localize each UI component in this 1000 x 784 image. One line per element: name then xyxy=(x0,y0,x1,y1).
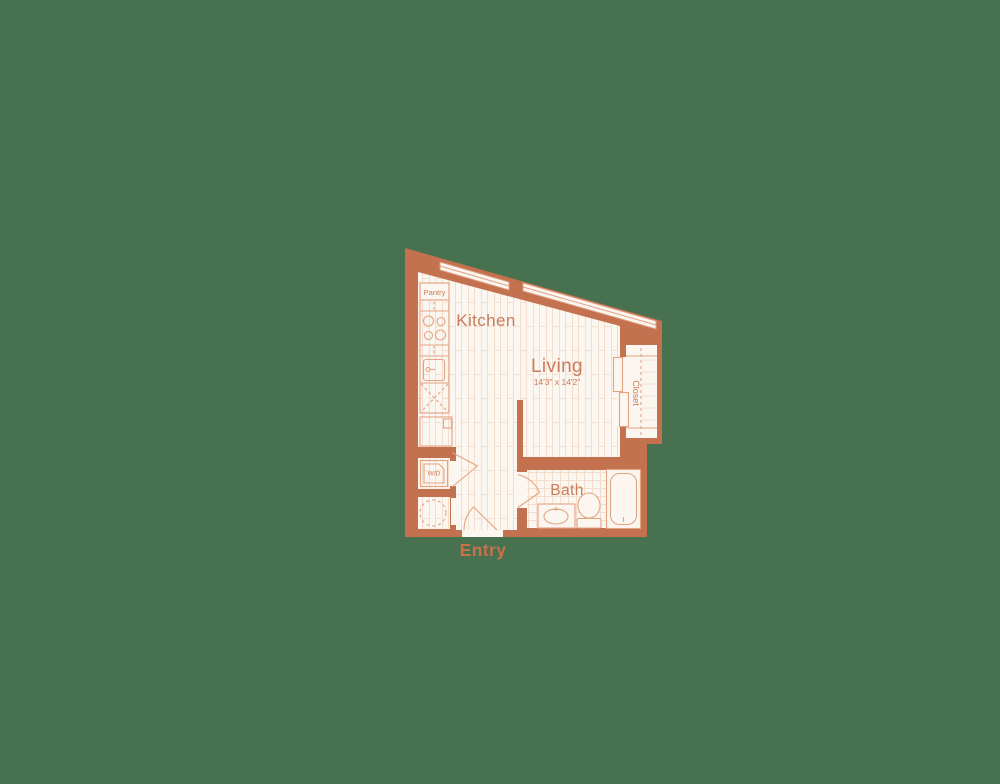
utility-closet-floor xyxy=(418,497,450,529)
kitchen-label: Kitchen xyxy=(456,311,516,330)
floorplan-canvas: Pantry Kitchen Living 14'3" x 14'2" Clos… xyxy=(0,0,1000,784)
bathtub xyxy=(607,470,641,529)
washer-dryer-label: W/D xyxy=(428,471,441,478)
bathroom-vanity xyxy=(538,504,575,528)
closet-label: Closet xyxy=(631,380,641,406)
entry-label: Entry xyxy=(460,540,507,560)
closet-sliding-door xyxy=(614,358,623,392)
pantry-label: Pantry xyxy=(424,288,446,297)
utility-closet-opening xyxy=(451,498,457,525)
bath-label: Bath xyxy=(550,482,584,499)
entry-door-opening xyxy=(462,530,503,537)
floorplan: Pantry Kitchen Living 14'3" x 14'2" Clos… xyxy=(405,248,662,560)
closet-sliding-door xyxy=(620,393,629,427)
living-dimensions: 14'3" x 14'2" xyxy=(534,377,581,387)
washer-dryer-door-opening xyxy=(450,461,457,486)
living-label: Living xyxy=(531,356,583,377)
